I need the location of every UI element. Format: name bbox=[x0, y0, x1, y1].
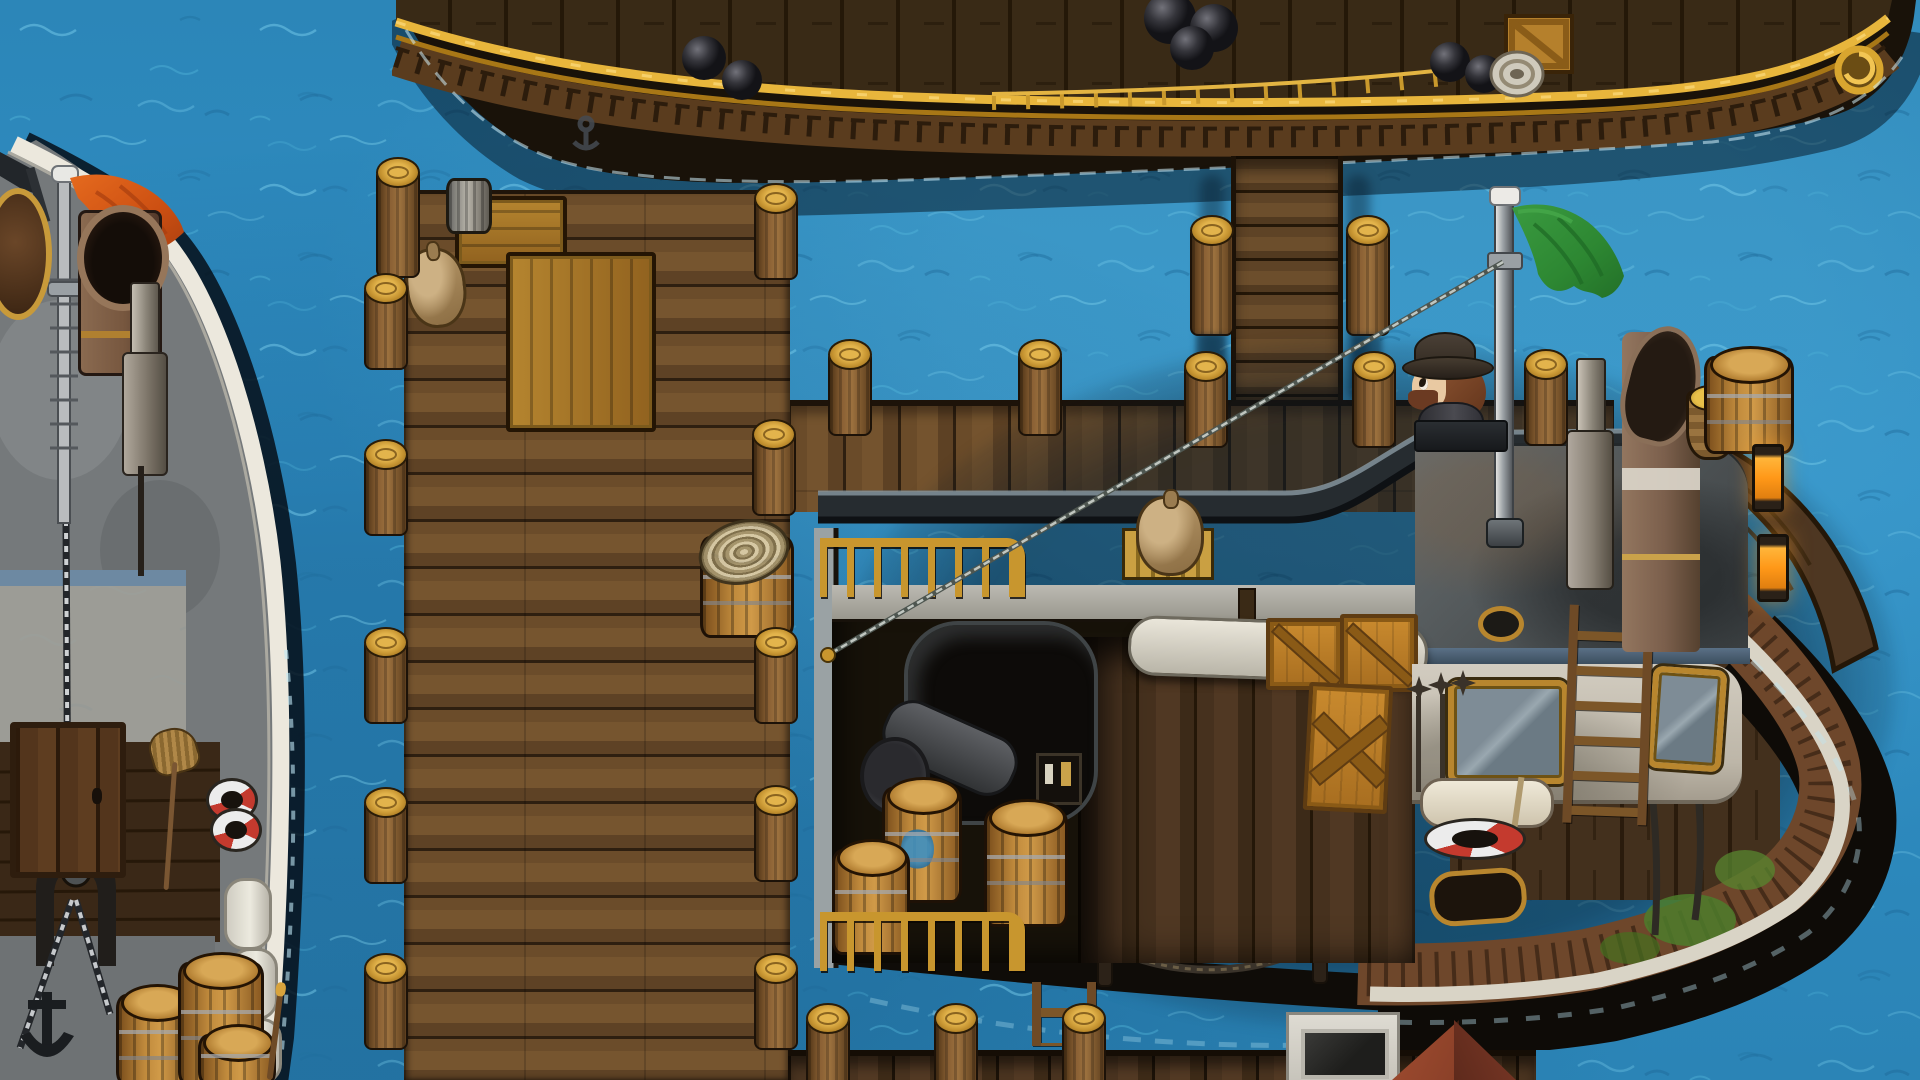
rope-overlay bbox=[0, 0, 1920, 1080]
rope-anchor-cleat bbox=[821, 648, 835, 662]
game-scene bbox=[0, 0, 1920, 1080]
